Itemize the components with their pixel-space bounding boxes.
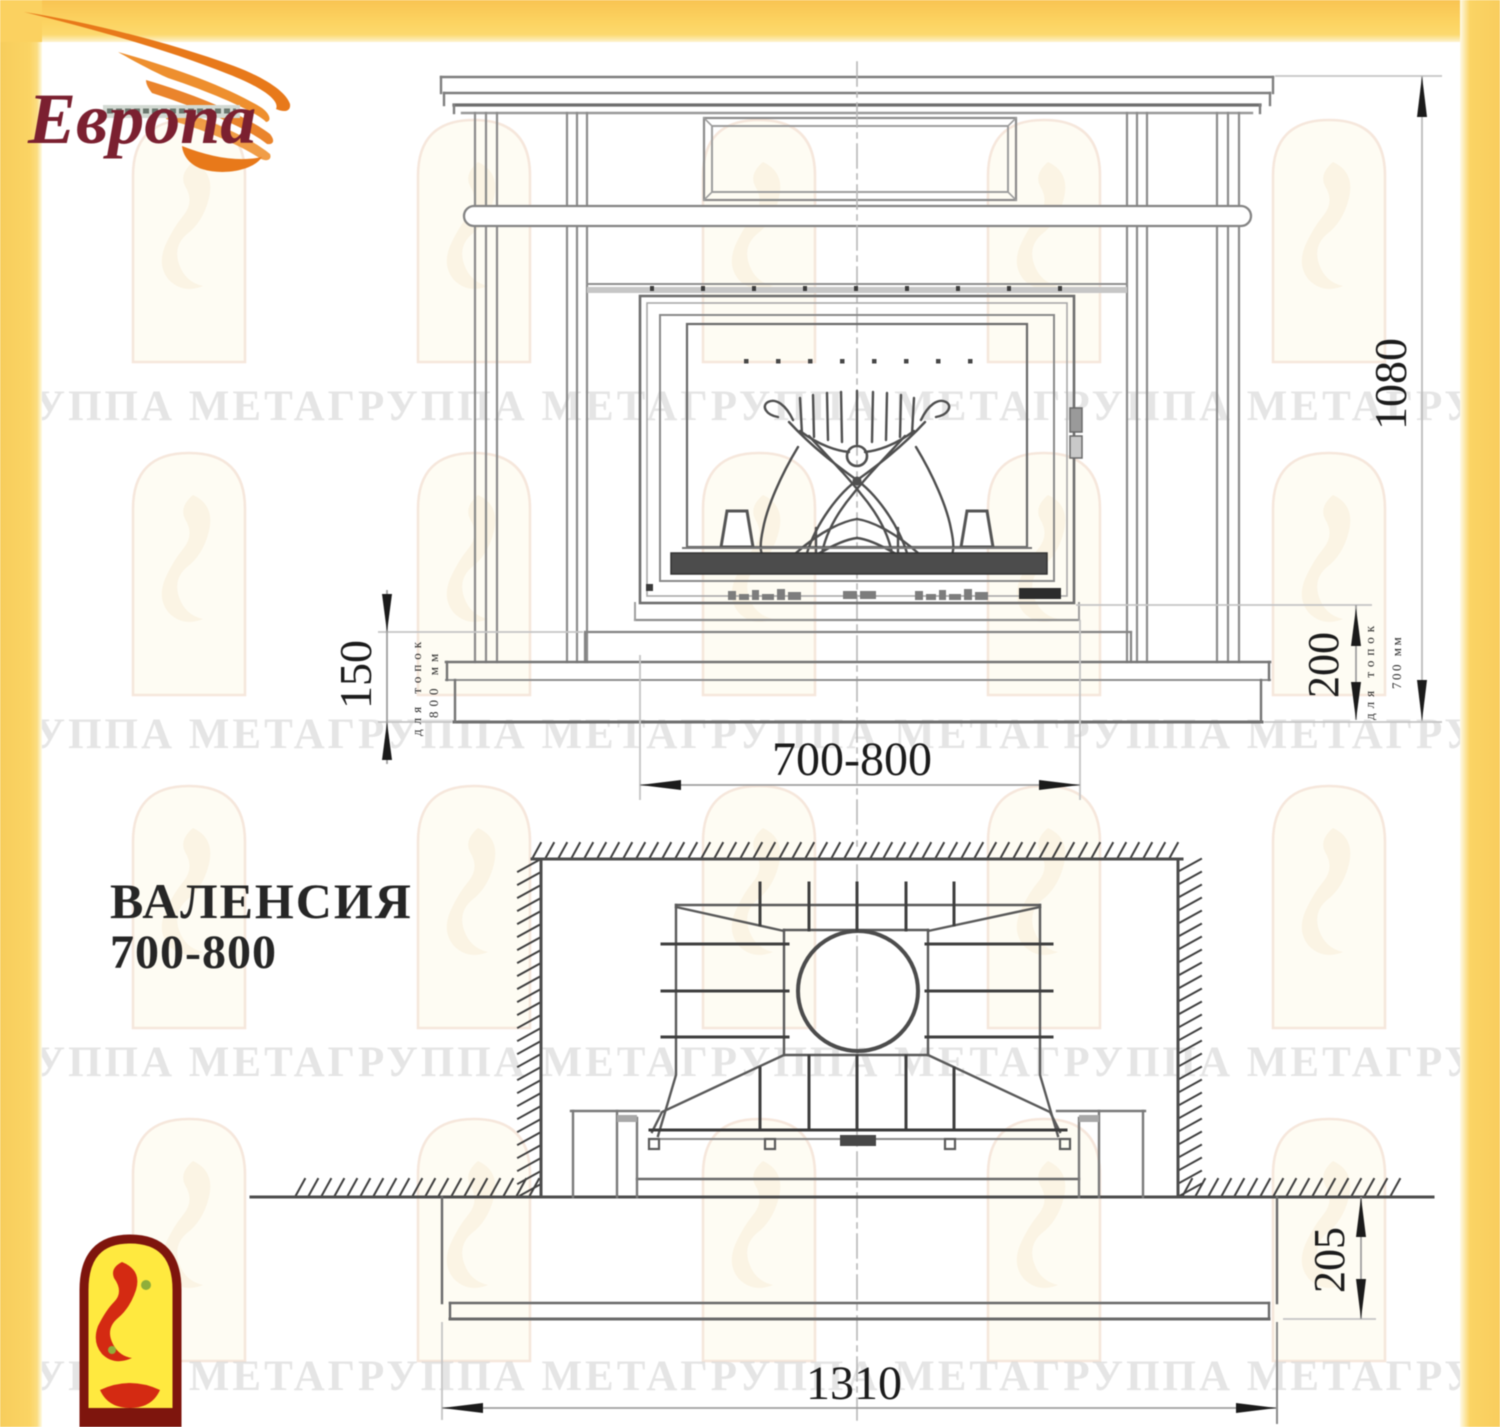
svg-text:ГРУППА МЕТАГРУППА МЕТАГРУППА М: ГРУППА МЕТАГРУППА МЕТАГРУППА МЕТАГРУППА … <box>0 1039 1500 1086</box>
svg-text:150: 150 <box>330 640 381 709</box>
svg-text:для топок: для топок <box>409 637 424 736</box>
svg-text:700-800: 700-800 <box>110 926 277 979</box>
svg-text:1310: 1310 <box>806 1357 902 1410</box>
svg-text:800 мм: 800 мм <box>426 649 441 718</box>
svg-text:ГРУППА МЕТАГРУППА МЕТАГРУППА М: ГРУППА МЕТАГРУППА МЕТАГРУППА МЕТАГРУППА … <box>0 1353 1500 1400</box>
svg-text:205: 205 <box>1305 1227 1354 1293</box>
svg-text:Европа: Европа <box>27 79 256 159</box>
svg-text:200: 200 <box>1299 632 1348 698</box>
svg-text:1080: 1080 <box>1365 338 1416 430</box>
svg-text:ВАЛЕНСИЯ: ВАЛЕНСИЯ <box>110 873 413 929</box>
svg-text:ГРУППА МЕТАГРУППА МЕТАГРУППА М: ГРУППА МЕТАГРУППА МЕТАГРУППА МЕТАГРУППА … <box>0 711 1500 758</box>
svg-text:700-800: 700-800 <box>772 733 932 786</box>
svg-text:700 мм: 700 мм <box>1389 635 1404 689</box>
svg-text:ГРУППА МЕТАГРУППА МЕТАГРУППА М: ГРУППА МЕТАГРУППА МЕТАГРУППА МЕТАГРУППА … <box>0 383 1500 430</box>
svg-text:для топок: для топок <box>1362 621 1377 720</box>
